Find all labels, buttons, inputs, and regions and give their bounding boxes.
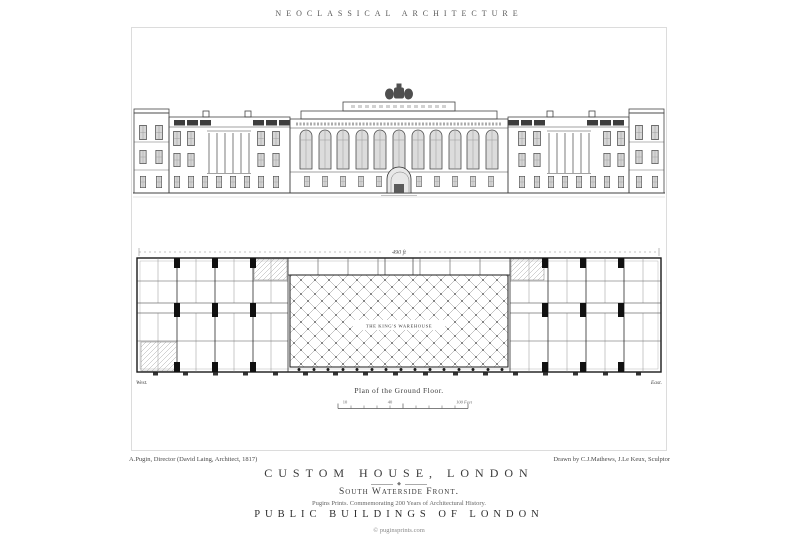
plan-center-hall: THE KING'S WAREHOUSE: [288, 258, 510, 371]
print-page: NEOCLASSICAL ARCHITECTURE: [0, 0, 797, 557]
central-portal: [381, 167, 417, 196]
center-block: [290, 84, 508, 196]
plan-caption: Plan of the Ground Floor.: [131, 386, 667, 395]
copyright-link[interactable]: © puginsprints.com: [131, 527, 667, 534]
left-wing: [169, 111, 290, 193]
right-pavilion: [629, 109, 664, 193]
right-wing: [508, 111, 629, 193]
scale-left-label: 10: [343, 400, 348, 405]
scale-mid-label: 40: [388, 400, 393, 405]
elevation-drawing: [133, 80, 665, 215]
ornament-rule-left: [371, 484, 393, 485]
series-header: NEOCLASSICAL ARCHITECTURE: [131, 9, 667, 18]
coat-of-arms: [385, 84, 413, 100]
ground-line: [133, 193, 665, 197]
plan-dimension-label: 490 ft: [392, 249, 406, 256]
plate-tagline: Pugins Prints. Commemorating 200 Years o…: [131, 500, 667, 507]
scale-bar: 10 40 100 Feet: [333, 399, 473, 415]
credit-left: A.Pugin, Director (David Laing, Architec…: [129, 456, 257, 463]
credit-right: Drawn by C.J.Mathews, J.Le Keux, Sculpto…: [553, 456, 670, 463]
plan-center-label: THE KING'S WAREHOUSE: [366, 324, 432, 329]
plan-drawing: 490 ft: [133, 245, 665, 395]
plan-south-columns: [153, 373, 641, 376]
plan-dimension-line: 490 ft: [139, 246, 659, 256]
plate-title: CUSTOM HOUSE, LONDON: [131, 466, 667, 481]
scale-right-label: 100 Feet: [456, 400, 473, 405]
ornament-rule-right: [405, 484, 427, 485]
left-pavilion: [134, 109, 169, 193]
plate-subtitle: South Waterside Front.: [131, 487, 667, 497]
series-footer: PUBLIC BUILDINGS OF LONDON: [131, 509, 667, 520]
